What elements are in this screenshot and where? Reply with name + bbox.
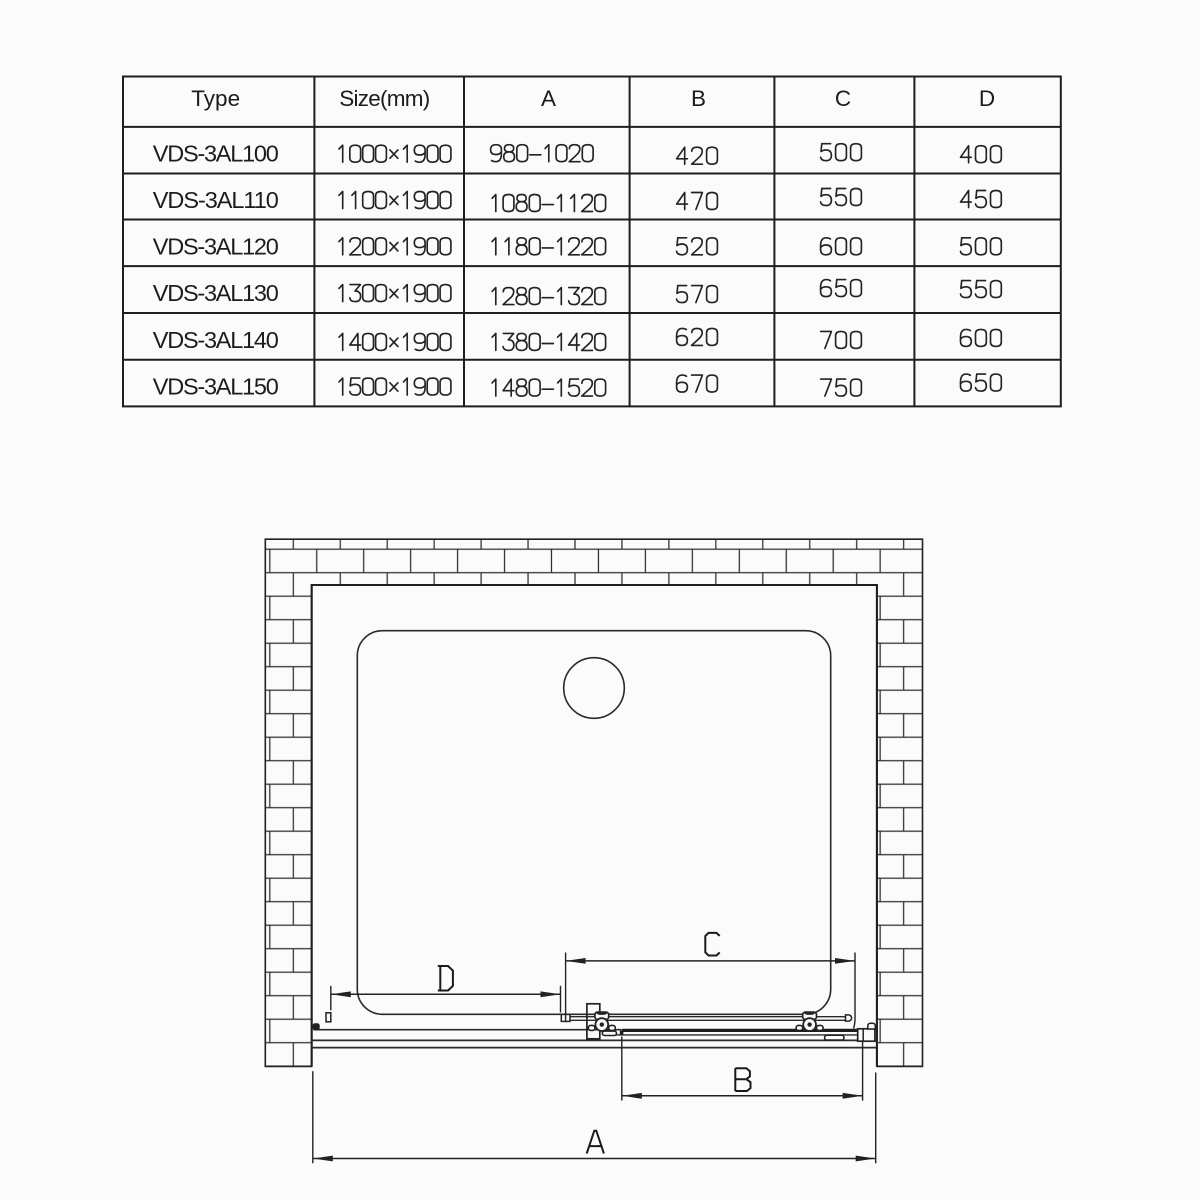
svg-text:VDS-3AL110: VDS-3AL110 [153,187,279,213]
svg-text:Size(mm): Size(mm) [339,86,430,111]
svg-text:VDS-3AL120: VDS-3AL120 [153,233,279,259]
svg-text:B: B [691,86,706,111]
svg-text:Type: Type [191,86,240,111]
svg-text:VDS-3AL130: VDS-3AL130 [153,280,279,306]
svg-text:VDS-3AL100: VDS-3AL100 [153,141,279,167]
svg-text:VDS-3AL140: VDS-3AL140 [153,327,279,353]
svg-text:C: C [835,86,851,111]
svg-text:A: A [541,86,556,111]
svg-text:VDS-3AL150: VDS-3AL150 [153,374,279,400]
svg-text:D: D [979,86,995,111]
